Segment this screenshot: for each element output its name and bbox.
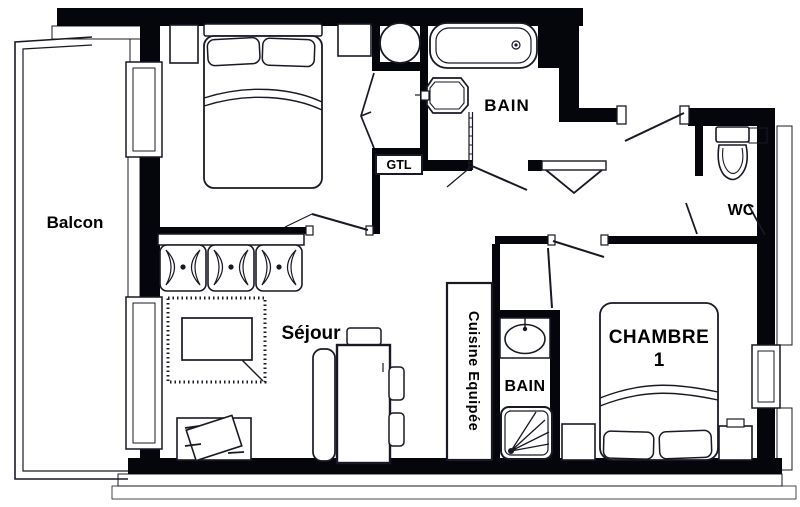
right-exterior-hatch-upper [777, 126, 792, 345]
chambre1-door-swing [553, 241, 604, 257]
living-room: Séjour [158, 234, 404, 463]
kitchen-label: Cuisine Equipée [465, 311, 481, 431]
bedroom2-balcony-window [126, 62, 162, 157]
kitchen: Cuisine Equipée [447, 283, 492, 460]
wall-tub-right [538, 26, 559, 68]
sejour-balcony-window [126, 297, 162, 449]
entry-closet-doors [546, 170, 602, 193]
dining-chair-right-1 [389, 367, 404, 400]
living-room-label: Séjour [281, 323, 341, 344]
dining-chair-right-2 [389, 413, 404, 446]
chambre1-door-jamb-left [548, 235, 555, 245]
floor-plan-page: Balcon [0, 0, 800, 507]
bed1-pillow-left [603, 431, 654, 459]
bain2-door-swing [548, 248, 552, 308]
dining-set [313, 328, 404, 463]
bedroom1: CHAMBRE 1 [562, 303, 752, 460]
balcony-parapet-inner [23, 45, 128, 471]
shower [501, 407, 552, 459]
bed1-nightstand-left [562, 424, 595, 460]
wall-left-2 [140, 155, 160, 297]
bedroom2-door-swing [312, 214, 368, 230]
wc-door-swing-left [686, 203, 697, 234]
bedroom2 [170, 24, 371, 188]
rug-coffee-table [168, 298, 265, 382]
balcony-railing-hatch-top [52, 26, 142, 39]
entry-door-swing [625, 113, 684, 141]
bathroom-bedroom: BAIN [500, 318, 552, 459]
tv-stand [177, 415, 251, 460]
washbasin-bottom [500, 318, 550, 358]
wall-right-2 [757, 408, 775, 460]
wall-chambre-north-2 [607, 236, 757, 244]
wall-right-1 [757, 126, 775, 345]
terrace-stipple-band [112, 486, 796, 499]
dining-table [337, 345, 390, 463]
entry-door-jamb-left [617, 106, 626, 124]
bedroom2-door-jamb-left [306, 226, 313, 235]
wc-label: WC [728, 202, 755, 219]
dining-chair-top [347, 328, 381, 345]
bed1-pillow-right [659, 430, 712, 459]
bathtub [430, 23, 537, 68]
bedroom2-door-swing-path [285, 214, 312, 227]
balcony-railing-hatch-side-mid [128, 155, 140, 297]
wall-entry-column [559, 26, 579, 122]
water-heater [380, 23, 420, 63]
wall-wc-west [695, 126, 703, 176]
bed2-nightstand-left [170, 25, 198, 63]
chambre1-window [752, 345, 780, 408]
bed2-pillow-left [207, 37, 260, 66]
floor-plan: Balcon [0, 0, 800, 507]
bathroom-bedroom-label: BAIN [504, 378, 545, 395]
bedroom1-number: 1 [654, 350, 665, 371]
gtl-label: GTL [387, 158, 412, 172]
wall-bain-south-1 [423, 160, 472, 171]
bed1-lamp [727, 419, 744, 427]
bed2-pillow-right [262, 38, 315, 67]
balcony-parapet-outer [15, 37, 128, 479]
wall-left-1 [140, 26, 160, 64]
bed1-nightstand-right [719, 426, 752, 460]
wall-heater-niche-left [372, 26, 380, 64]
gtl-box: GTL [376, 155, 422, 174]
wall-kitchen-right [492, 244, 500, 460]
bain-door-swing [472, 166, 527, 190]
dining-bench [313, 349, 335, 461]
wall-wc-north [688, 108, 775, 126]
chambre1-door-jamb-right [601, 235, 608, 245]
wall-entry-stub [559, 108, 621, 122]
wall-bain-south-2 [528, 160, 542, 171]
bottom-exterior-hatch [118, 474, 782, 486]
bathroom-top-label: BAIN [484, 96, 530, 115]
toilet [716, 127, 749, 180]
balcony-label: Balcon [47, 213, 104, 232]
basin-faucet [421, 91, 429, 100]
balcony: Balcon [15, 37, 128, 479]
wall-bedroom2-south [158, 227, 310, 234]
bed2-nightstand-right [338, 24, 371, 56]
sofa [158, 234, 304, 291]
bedroom1-label: CHAMBRE [609, 327, 710, 348]
folding-closet-door [361, 73, 374, 148]
entry-closet [542, 161, 606, 170]
wall-chambre-north-1 [495, 236, 550, 244]
bed2-headboard [204, 24, 322, 36]
